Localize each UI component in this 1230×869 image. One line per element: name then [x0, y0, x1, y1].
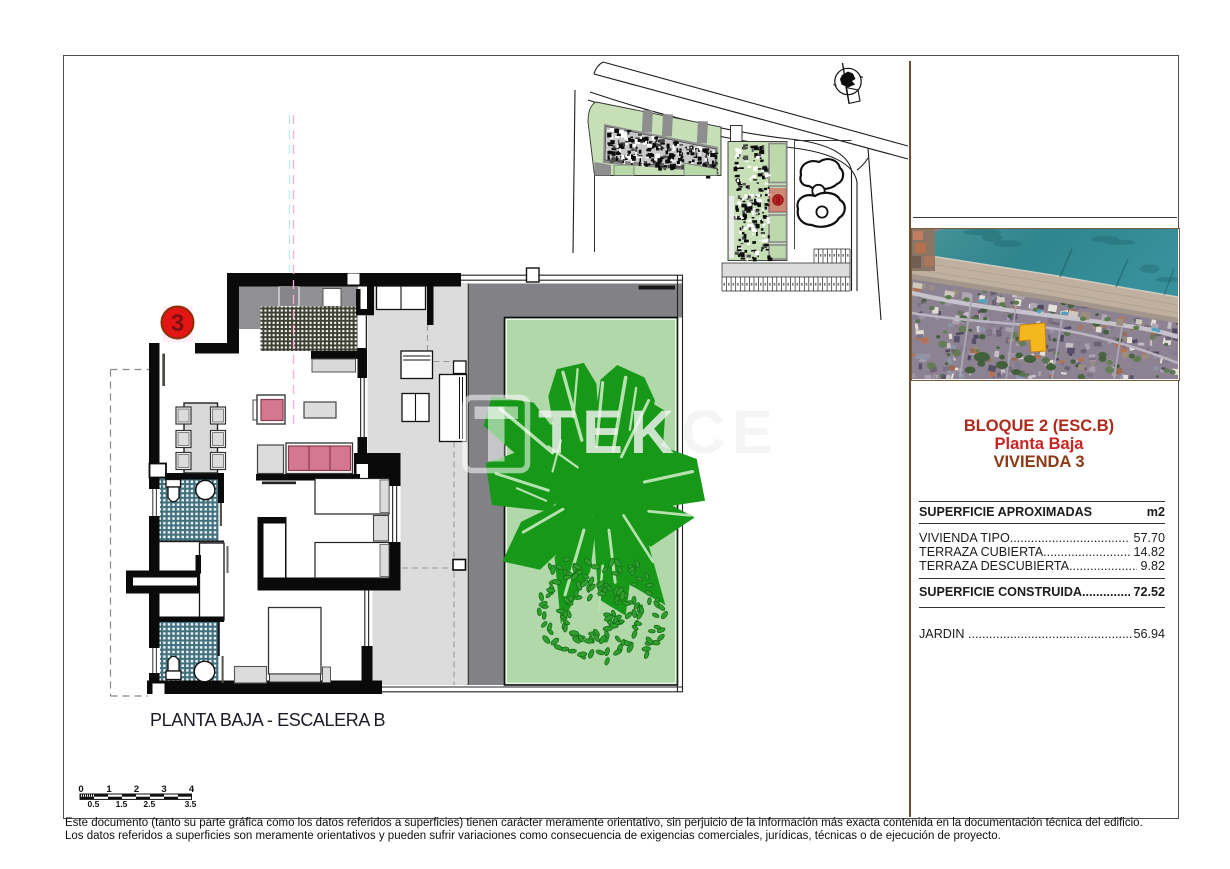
svg-text:TEKCE: TEKCE — [538, 398, 780, 466]
svg-text:3: 3 — [171, 310, 184, 337]
svg-text:0.5: 0.5 — [87, 799, 99, 809]
svg-text:2: 2 — [134, 784, 139, 795]
svg-text:4: 4 — [189, 784, 195, 795]
svg-text:1: 1 — [106, 784, 112, 795]
svg-text:1.5: 1.5 — [116, 799, 128, 809]
svg-text:3.5: 3.5 — [185, 799, 197, 809]
svg-text:3: 3 — [161, 784, 166, 795]
svg-text:0: 0 — [78, 784, 83, 795]
svg-text:2.5: 2.5 — [143, 799, 155, 809]
svg-text:3: 3 — [776, 196, 781, 205]
